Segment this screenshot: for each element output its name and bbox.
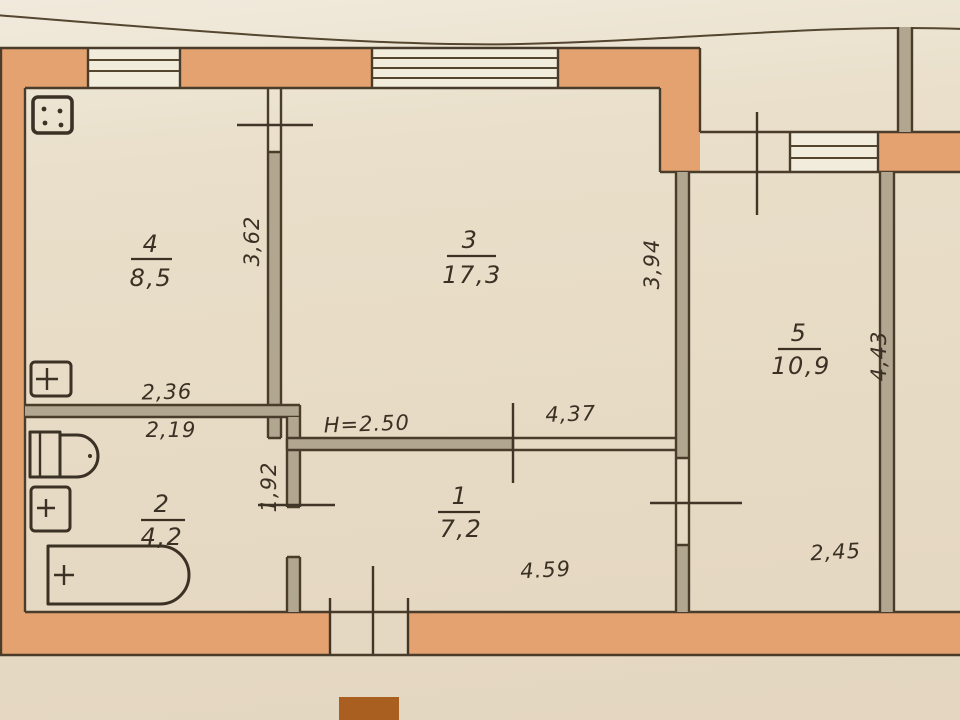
room-label-bathroom: 2 4,2 xyxy=(141,490,185,551)
dim-room5-depth: 4,43 xyxy=(867,331,891,382)
room-number: 3 xyxy=(462,226,479,254)
window-symbol xyxy=(790,132,878,172)
wall-kitchen-bath xyxy=(25,405,300,417)
kitchen-sink-icon xyxy=(31,362,71,396)
dim-room5-width: 2,45 xyxy=(810,539,862,566)
room-number: 5 xyxy=(791,319,808,347)
dim-hallway-width: 4.59 xyxy=(520,557,572,584)
window-symbol xyxy=(88,48,180,88)
room-area: 17,3 xyxy=(442,261,501,289)
stamp xyxy=(339,697,399,720)
toilet-icon xyxy=(30,432,98,477)
wall-bottom xyxy=(408,612,960,656)
room-area: 7,2 xyxy=(440,515,483,543)
room-label-kitchen: 4 8,5 xyxy=(130,230,173,292)
wall-segment xyxy=(878,132,960,172)
room-area: 4,2 xyxy=(141,523,184,551)
wall-room5-right xyxy=(880,172,894,612)
dim-ceiling-height: H=2.50 xyxy=(323,411,410,438)
wall-room5-left xyxy=(676,172,689,458)
electric-stove-icon xyxy=(33,97,72,133)
wall-porch xyxy=(898,27,912,132)
washbasin-icon xyxy=(31,487,70,531)
wall-bath-hall xyxy=(287,557,300,612)
floor-plan-photo: 4 8,5 3 17,3 5 10,9 2 4,2 1 7,2 2,36 2,1… xyxy=(0,0,960,720)
dim-bathroom-depth: 1,92 xyxy=(257,462,281,513)
wall-corner-step xyxy=(660,48,700,172)
wall-kitchen-living xyxy=(268,152,281,438)
dim-living-depth: 3,94 xyxy=(640,239,664,290)
dim-kitchen-width: 2,36 xyxy=(141,380,192,405)
wall-bottom xyxy=(0,612,330,656)
dim-bathroom-width: 2,19 xyxy=(146,418,197,442)
bathtub-icon xyxy=(48,546,189,604)
wall-living-hall xyxy=(287,438,513,450)
wall-segment xyxy=(180,48,372,88)
room-label-hallway: 1 7,2 xyxy=(438,482,482,543)
room-number: 2 xyxy=(154,490,171,518)
dim-kitchen-depth: 3,62 xyxy=(240,216,264,267)
building-edge-line xyxy=(0,15,960,44)
room-label-living: 3 17,3 xyxy=(442,226,501,289)
wall-bath-hall xyxy=(287,417,300,507)
room-label-room5: 5 10,9 xyxy=(771,319,830,380)
wall-left xyxy=(0,48,25,656)
room-number: 4 xyxy=(143,230,160,258)
room-area: 10,9 xyxy=(771,352,830,380)
room-area: 8,5 xyxy=(130,264,173,292)
floor-plan-drawing: 4 8,5 3 17,3 5 10,9 2 4,2 1 7,2 2,36 2,1… xyxy=(0,0,960,720)
dim-living-width: 4,37 xyxy=(545,401,597,427)
dimension-labels: 2,36 2,19 H=2.50 4,37 4.59 2,45 3,62 1,9… xyxy=(141,216,891,584)
window-symbol xyxy=(372,48,558,88)
wall-room5-left xyxy=(676,545,689,612)
room-number: 1 xyxy=(452,482,469,510)
